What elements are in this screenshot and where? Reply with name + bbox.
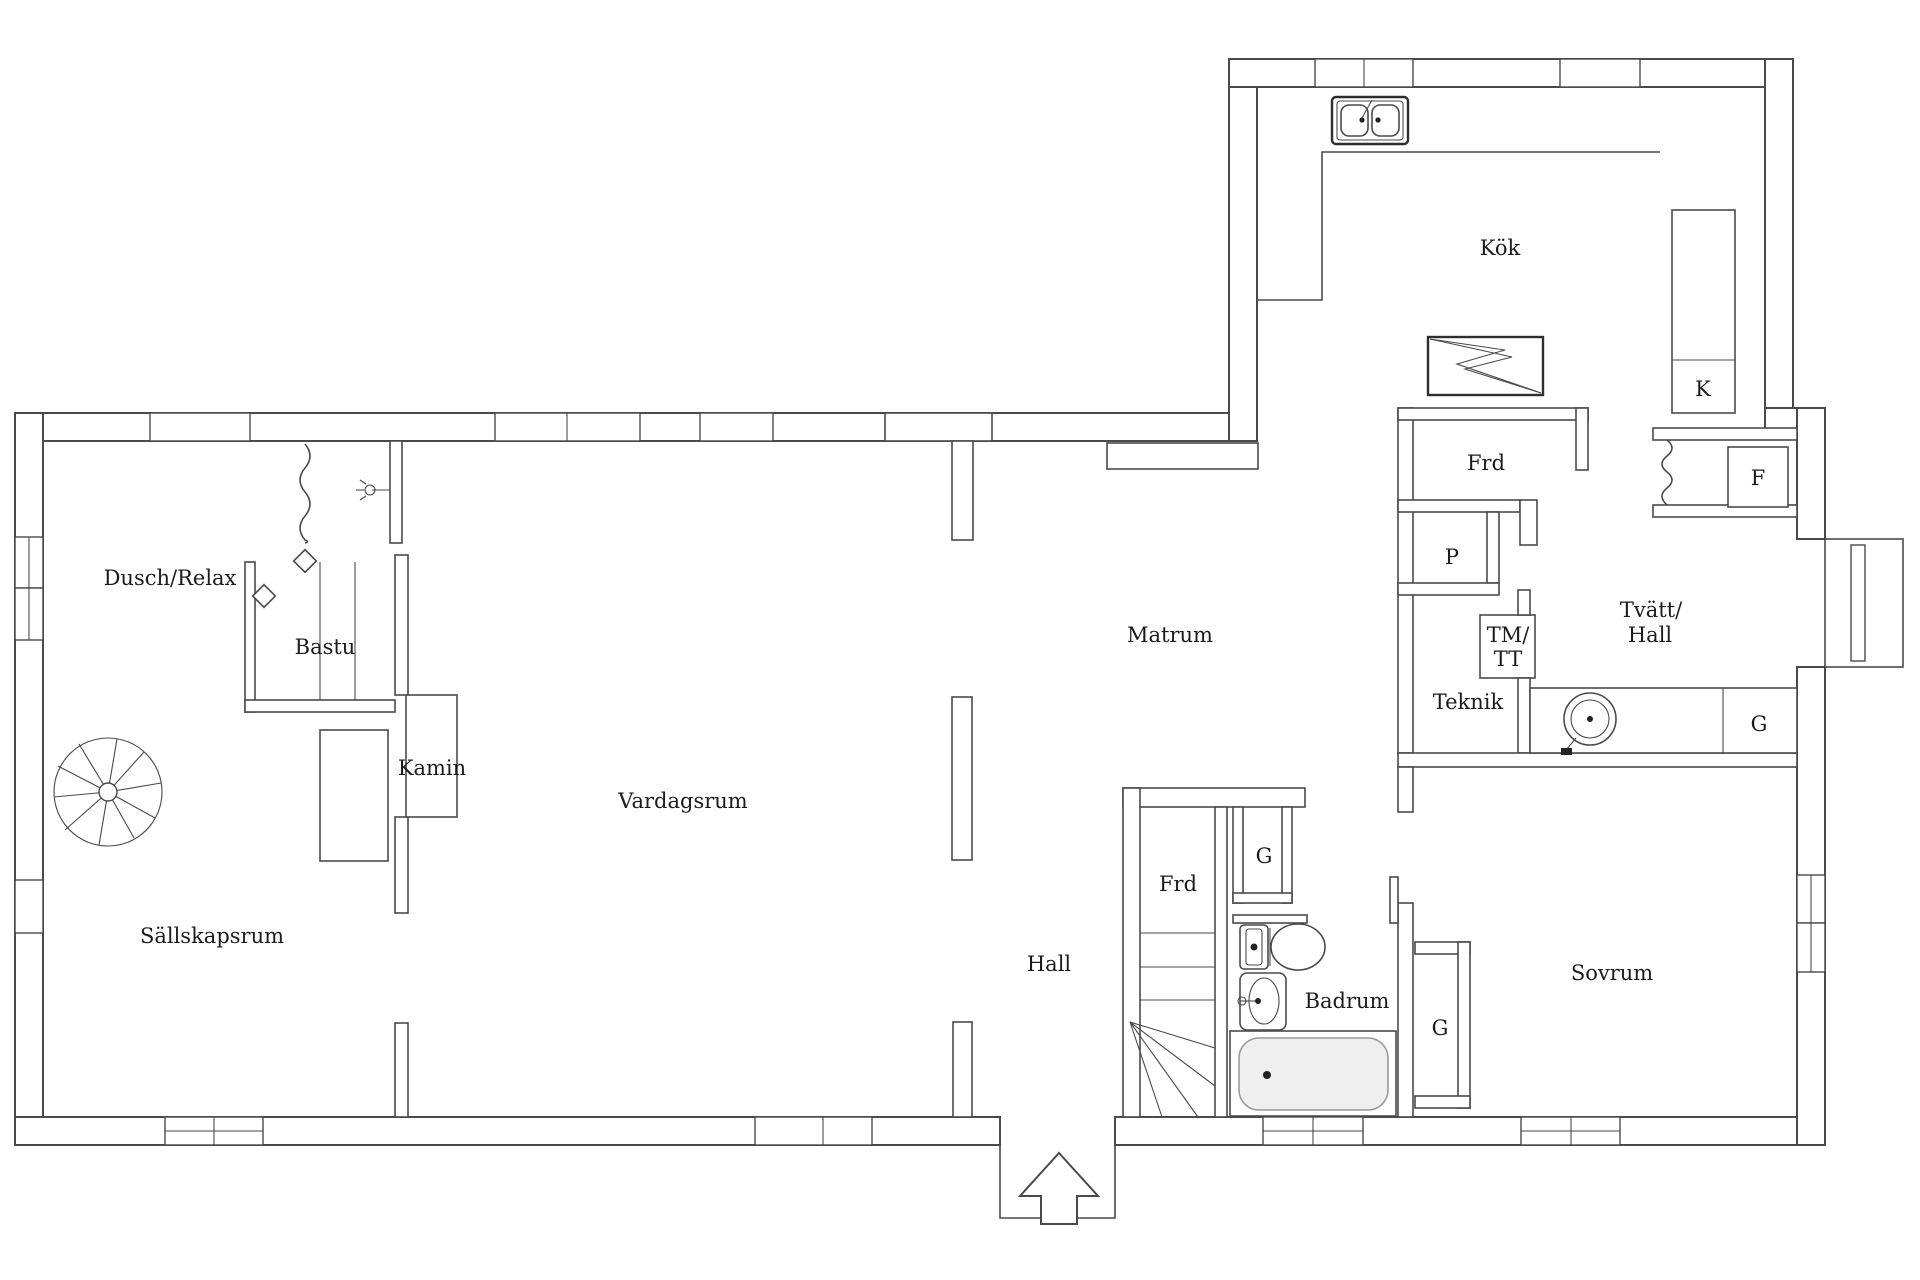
shower-curtain [300, 444, 310, 543]
room-label-sovrum: Sovrum [1571, 961, 1653, 985]
stove-symbol [1428, 337, 1543, 395]
straight-staircase-symbol [1130, 933, 1215, 1117]
room-label-teknik: Teknik [1433, 690, 1504, 714]
room-label-k: K [1695, 377, 1711, 401]
room-label-frd-top: Frd [1467, 451, 1505, 475]
room-label-dusch-relax: Dusch/Relax [104, 566, 237, 590]
room-label-badrum: Badrum [1305, 989, 1390, 1013]
floorplan-page: Kök K Frd F P Tvätt/ Hall TM/ TT Teknik … [0, 0, 1920, 1280]
floorplan-drawing: Kök K Frd F P Tvätt/ Hall TM/ TT Teknik … [0, 0, 1920, 1280]
room-label-vardagsrum: Vardagsrum [617, 789, 748, 813]
room-label-bastu: Bastu [295, 635, 356, 659]
kitchen-counter [1257, 152, 1660, 300]
shower-head-icon [356, 480, 390, 500]
sauna-door-posts [253, 550, 317, 608]
center-wall-stubs [885, 413, 1258, 1117]
room-label-tm: TM/ [1487, 623, 1531, 647]
room-label-hall: Hall [1027, 952, 1072, 976]
room-label-tvatt-2: Hall [1628, 623, 1673, 647]
washbasin-symbol [1238, 973, 1286, 1030]
room-label-matrum: Matrum [1127, 623, 1213, 647]
room-label-tvatt-1: Tvätt/ [1620, 598, 1683, 622]
room-label-g-sovrum: G [1432, 1016, 1449, 1040]
room-label-tt: TT [1494, 647, 1522, 671]
spiral-staircase-symbol [54, 738, 162, 846]
toilet-symbol [1240, 924, 1325, 970]
bathtub-symbol [1230, 1031, 1396, 1116]
room-label-p: P [1445, 545, 1459, 569]
room-label-g-tvatt: G [1751, 712, 1768, 736]
room-label-frd-bottom: Frd [1159, 872, 1197, 896]
kitchen-sink-symbol [1332, 97, 1408, 144]
windows [15, 59, 1825, 1145]
room-label-sallskapsrum: Sällskapsrum [140, 924, 284, 948]
room-label-kamin: Kamin [398, 756, 466, 780]
bay-window [1825, 539, 1903, 667]
room-label-f: F [1751, 466, 1766, 490]
room-label-g-hall: G [1256, 844, 1273, 868]
entrance-arrow-icon [1020, 1153, 1098, 1224]
room-label-kok: Kök [1480, 236, 1521, 260]
freezer-closet [1653, 428, 1797, 517]
exterior-walls [15, 59, 1825, 1145]
interior-walls-left [245, 441, 408, 1117]
